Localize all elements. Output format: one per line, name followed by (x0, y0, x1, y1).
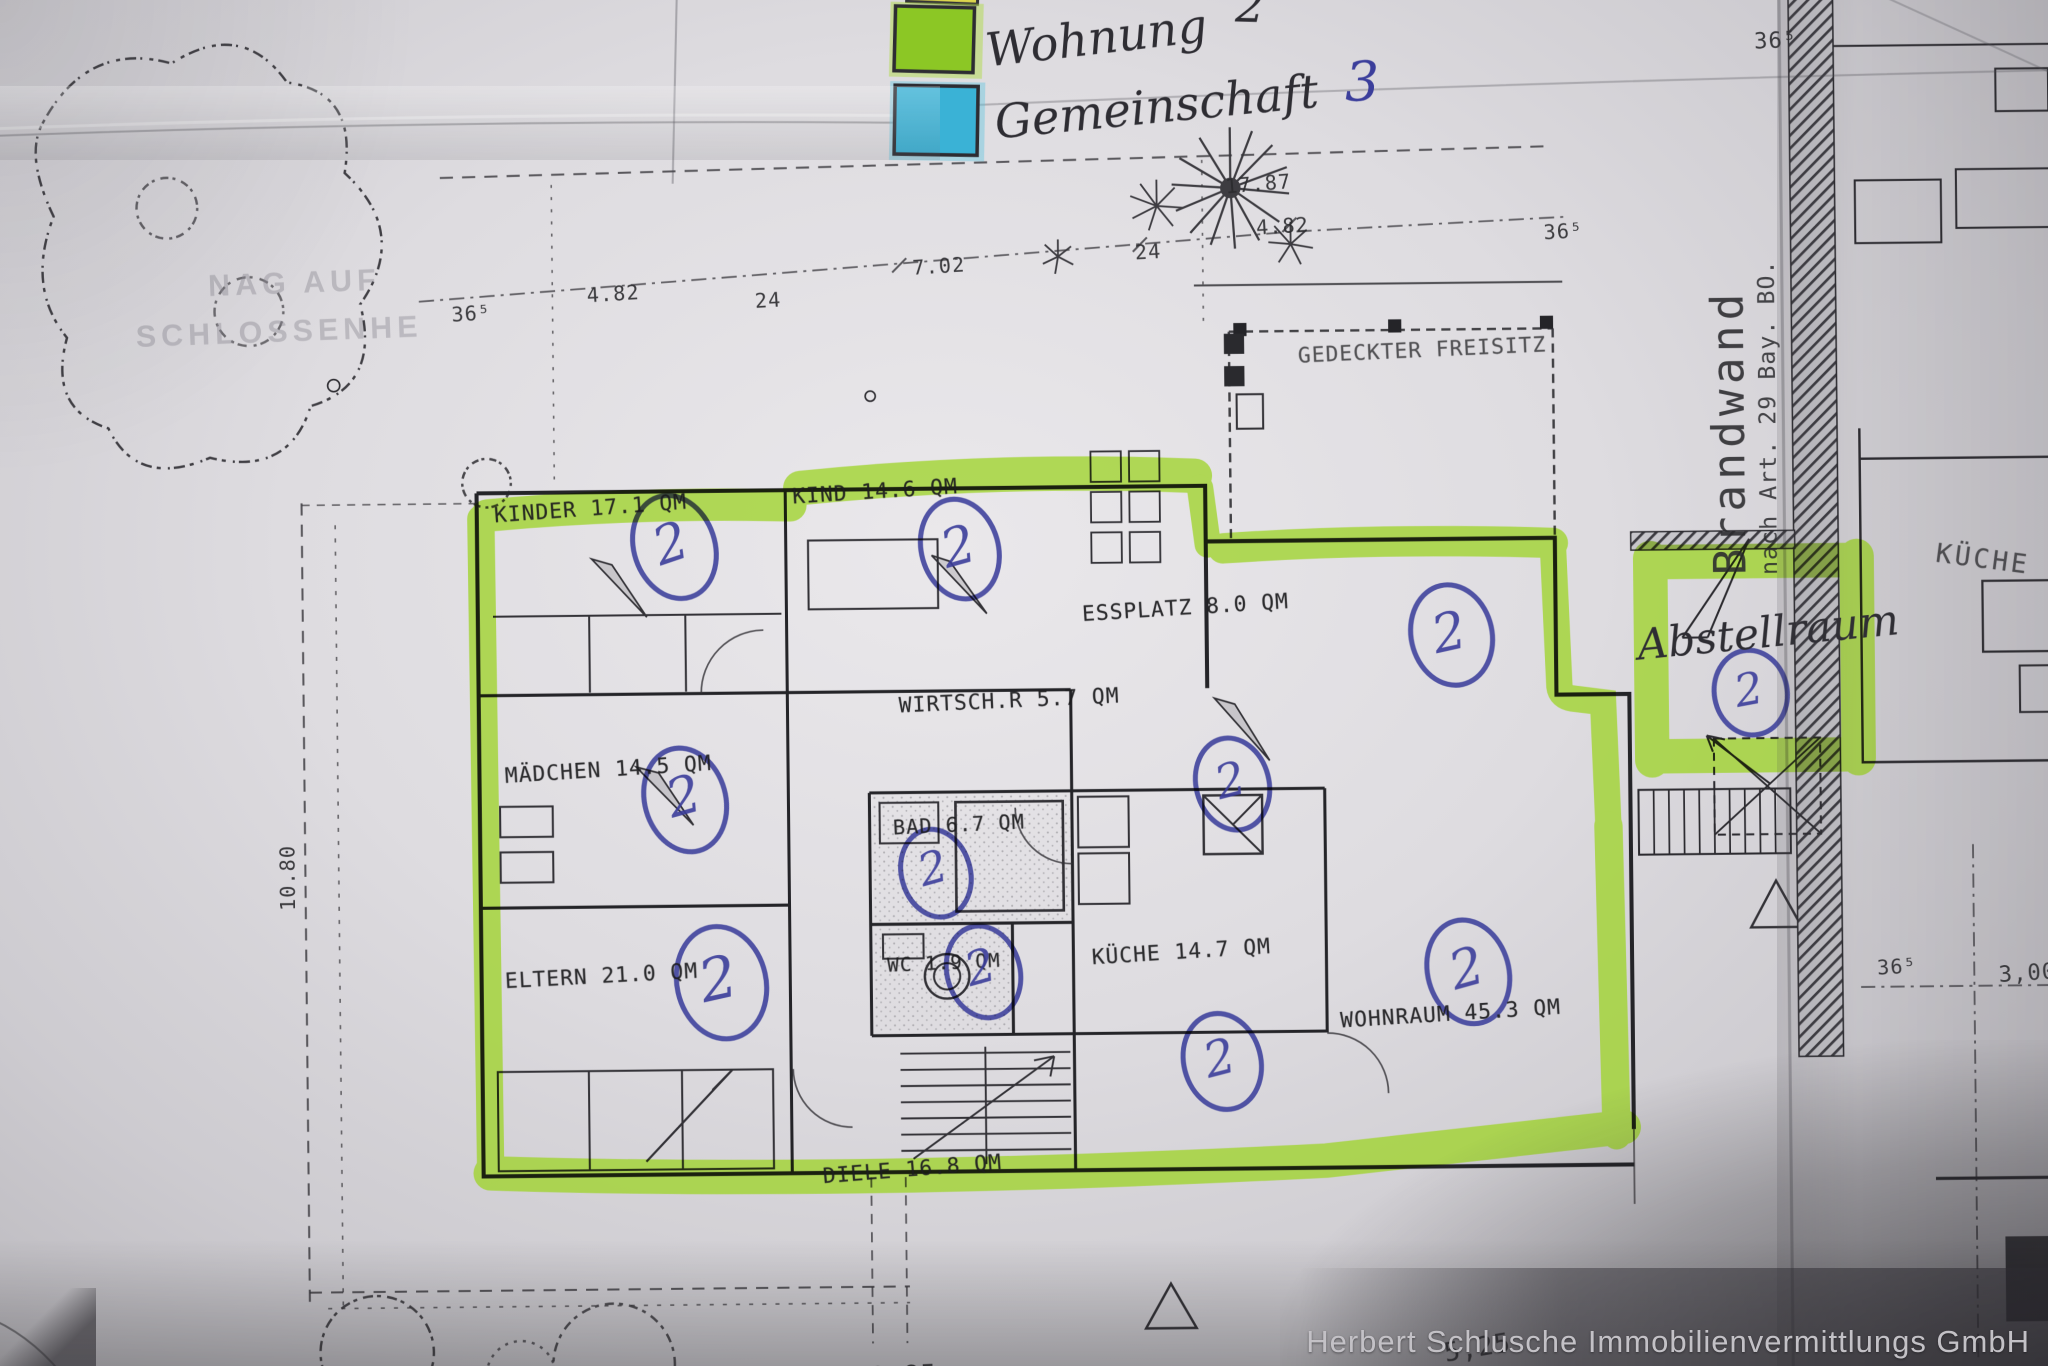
dimension-482a: 4.82 (1255, 212, 1309, 240)
dimension-24a: 24 (1134, 239, 1162, 265)
dimension-365-right: 36⁵ (1876, 953, 1917, 980)
agency-watermark: Herbert Schlusche Immobilienvermittlungs… (1306, 1324, 2030, 1360)
faint-stamp-line1: NAG AUF (208, 263, 382, 304)
legend-swatches (887, 0, 986, 162)
legend-count-wohnung: 2 (1235, 0, 1266, 33)
legend-swatch-gemeinschaft (894, 85, 978, 155)
floor-plan-photo: NAG AUF SCHLOSSENHE Wohnung 2 Gemeinscha… (0, 0, 2048, 1366)
dimension-300: 3,00 (1998, 959, 2048, 988)
firewall-subtitle: nach Art. 29 Bay. BO. (1753, 259, 1783, 575)
firewall-title: Brandwand (1702, 260, 1757, 576)
dimension-24b: 24 (754, 287, 782, 313)
dimension-1080: 10.80 (275, 845, 300, 911)
legend-swatch-wohnung (894, 6, 974, 73)
firewall-label: Brandwand nach Art. 29 Bay. BO. (1702, 259, 1783, 575)
building-walls (474, 281, 1634, 1176)
dimension-482b: 4.82 (586, 280, 640, 308)
dimension-365a: 36⁵ (451, 300, 492, 327)
legend-count-gemeinschaft: 3 (1344, 49, 1381, 114)
dimension-365-corner: 36⁵ (1754, 27, 1798, 54)
dimension-365b: 36⁵ (1543, 218, 1584, 245)
dimension-702: 7.02 (912, 252, 966, 280)
paper-sheet: NAG AUF SCHLOSSENHE Wohnung 2 Gemeinscha… (0, 0, 2048, 1366)
